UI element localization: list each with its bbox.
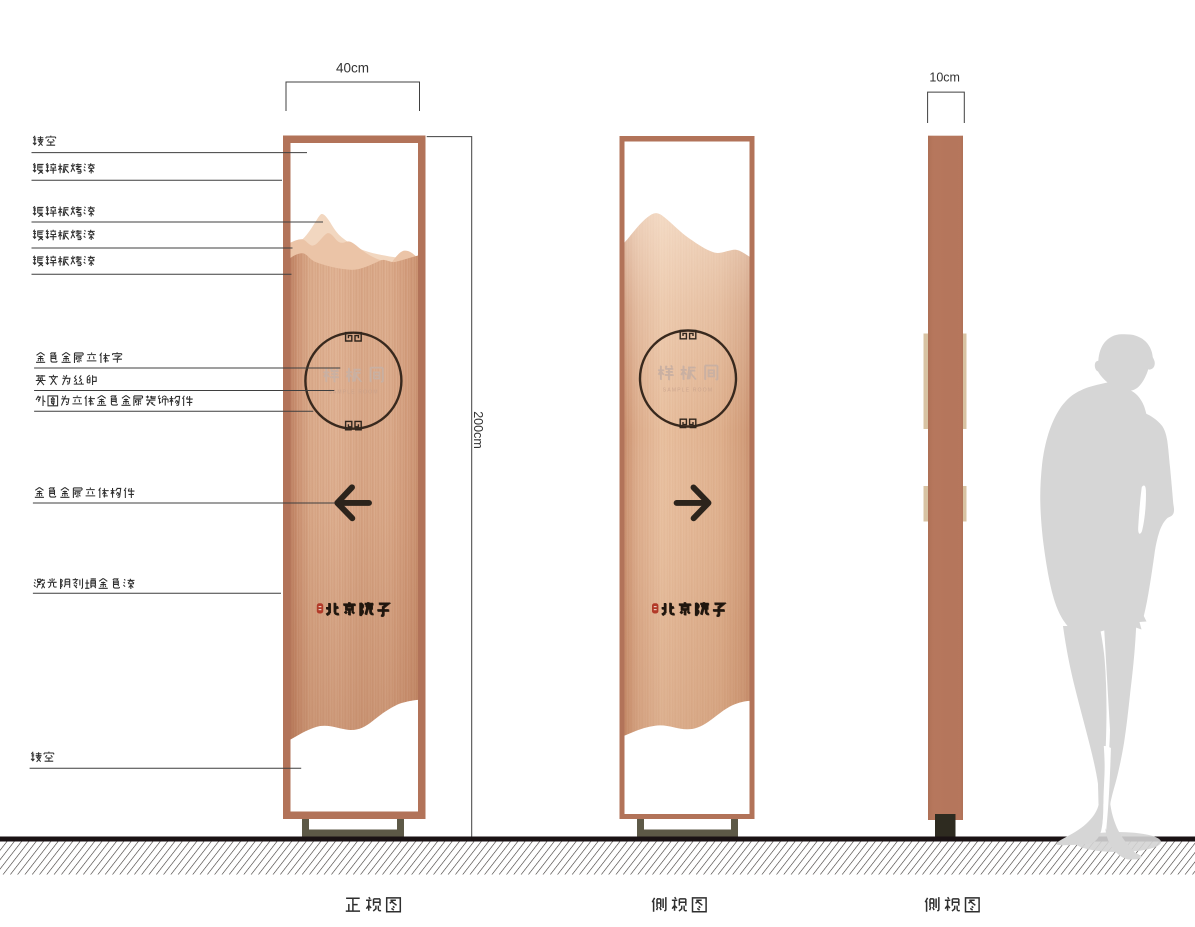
svg-text:10cm: 10cm	[929, 71, 960, 85]
svg-text:40cm: 40cm	[336, 61, 369, 76]
svg-text:SAMPLE ROOM: SAMPLE ROOM	[328, 390, 378, 396]
svg-text:SAMPLE ROOM: SAMPLE ROOM	[663, 387, 713, 393]
svg-text:200cm: 200cm	[471, 411, 485, 449]
